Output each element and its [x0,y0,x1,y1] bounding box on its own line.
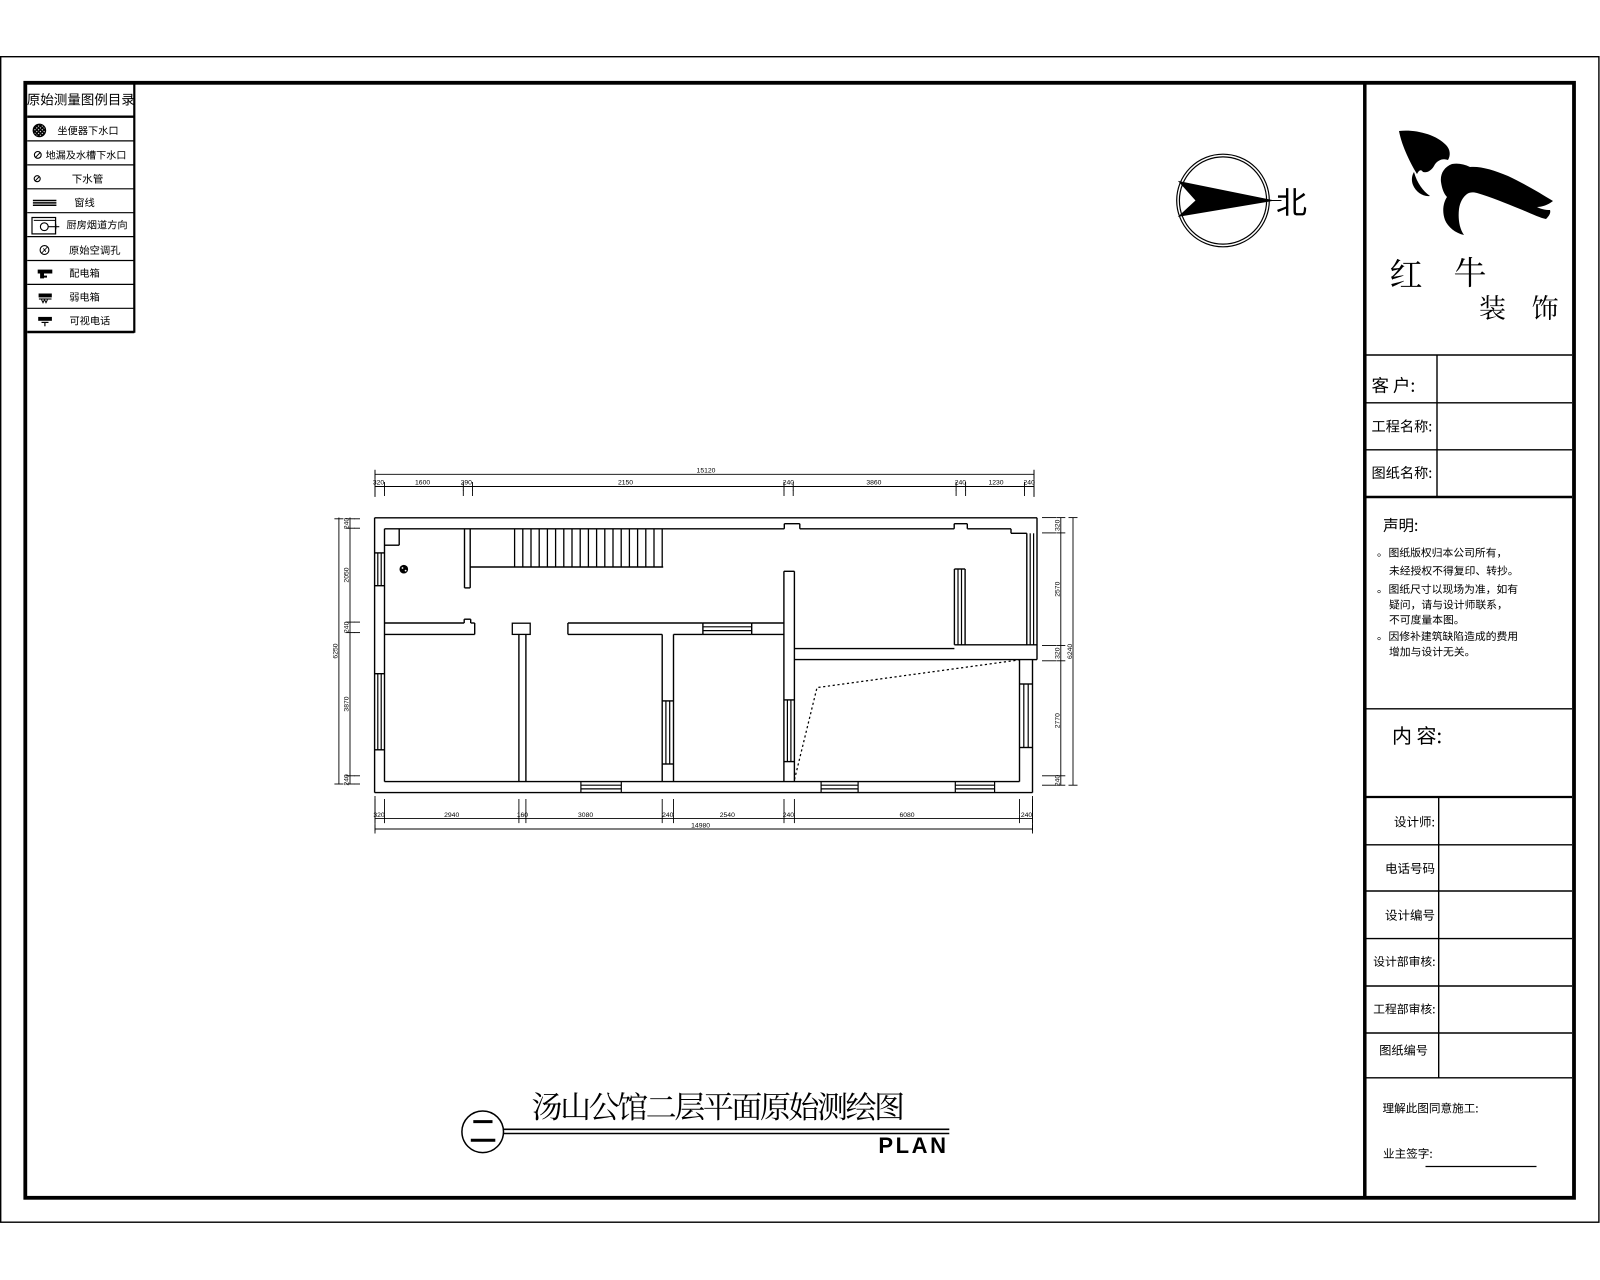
svg-text:320: 320 [373,480,385,487]
svg-text:320: 320 [1055,647,1062,659]
svg-text:6240: 6240 [1067,644,1074,659]
svg-text:2570: 2570 [1055,581,1062,596]
svg-text:240: 240 [783,480,795,487]
svg-text:3870: 3870 [344,696,351,711]
svg-text:3080: 3080 [578,812,593,819]
svg-text:2940: 2940 [444,812,459,819]
svg-text:3860: 3860 [866,480,881,487]
svg-text:PLAN: PLAN [878,1133,948,1158]
svg-text:320: 320 [1055,519,1062,531]
svg-text:6250: 6250 [333,643,340,658]
svg-text:240: 240 [1055,775,1062,787]
svg-text:15120: 15120 [697,467,716,474]
svg-text:2050: 2050 [344,567,351,582]
svg-text:240: 240 [1024,480,1036,487]
svg-text:160: 160 [517,812,529,819]
svg-text:2150: 2150 [618,480,633,487]
svg-text:1230: 1230 [988,480,1003,487]
svg-text:290: 290 [461,480,473,487]
svg-text:2770: 2770 [1055,713,1062,728]
svg-text:240: 240 [955,480,967,487]
svg-text:6080: 6080 [899,812,914,819]
svg-text:320: 320 [373,812,385,819]
svg-text:240: 240 [344,518,351,530]
svg-text:1600: 1600 [415,480,430,487]
svg-text:240: 240 [344,774,351,786]
svg-text:240: 240 [344,621,351,633]
svg-text:240: 240 [1021,812,1033,819]
svg-text:14980: 14980 [691,823,710,830]
svg-text:240: 240 [662,812,674,819]
svg-text:240: 240 [783,812,795,819]
svg-text:2540: 2540 [720,812,735,819]
